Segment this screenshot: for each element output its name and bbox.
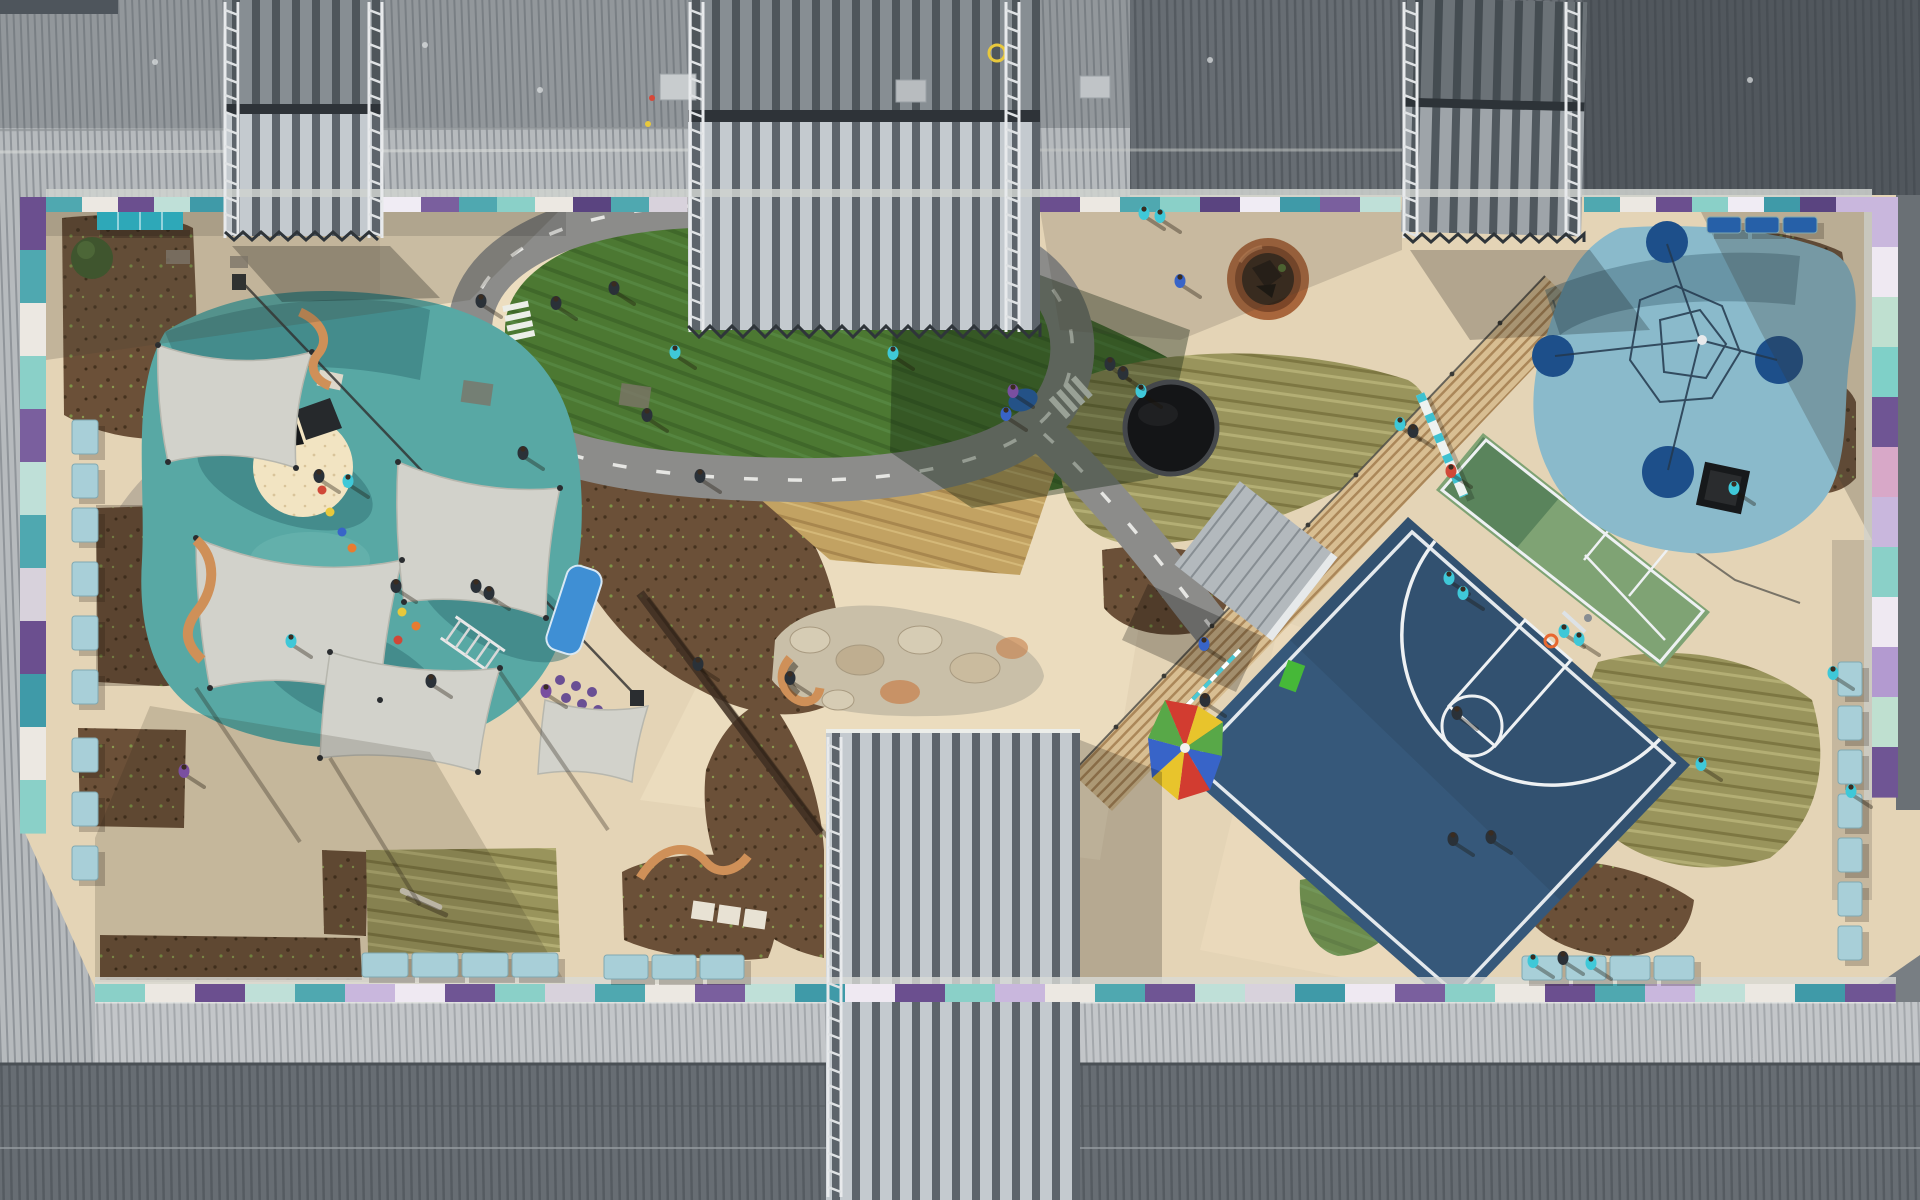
aerial-photo-schoolyard: { "scene": { "type": "aerial-drone-photo… <box>0 0 1920 1200</box>
wall-panels-top-4 <box>1584 197 1621 212</box>
wall-panels-right <box>1872 247 1898 298</box>
wall-panels-top-3 <box>1200 197 1241 212</box>
child-head <box>1202 693 1207 698</box>
wall-panels-bottom <box>1695 984 1746 1002</box>
wall-panels-left <box>20 621 46 675</box>
wall-panels-bottom <box>95 984 146 1002</box>
wall-panels-top-2 <box>535 197 574 212</box>
wall-panels-top-1 <box>190 197 227 212</box>
child-head <box>478 294 483 299</box>
child-head <box>1560 951 1565 956</box>
child-head <box>1157 209 1162 214</box>
child-head <box>644 408 649 413</box>
wall-panels-top-2 <box>611 197 650 212</box>
wall-panels-right <box>1872 197 1898 248</box>
child-head <box>428 674 433 679</box>
wall-panels-left <box>20 197 46 251</box>
wall-panels-bottom <box>995 984 1046 1002</box>
wall-panels-top-2 <box>459 197 498 212</box>
wall-panels-bottom <box>845 984 896 1002</box>
wall-panels-right <box>1872 647 1898 698</box>
bench-column-right <box>1838 750 1862 784</box>
drain-grate <box>166 250 190 264</box>
wall-panels-left <box>20 409 46 463</box>
wall-panels-top-3 <box>1240 197 1281 212</box>
bench-row-bottom-left <box>462 953 508 977</box>
bench-column-left <box>72 508 98 542</box>
bench-column-left <box>72 670 98 704</box>
child-head <box>1698 757 1703 762</box>
child-head <box>393 579 398 584</box>
child-head <box>1177 274 1182 279</box>
child-head <box>1460 586 1465 591</box>
wall-panels-bottom <box>195 984 246 1002</box>
wall-panels-left <box>20 303 46 357</box>
wall-panels-top-3 <box>1360 197 1401 212</box>
bench-column-right <box>1838 882 1862 916</box>
child-head <box>288 634 293 639</box>
child-head <box>486 586 491 591</box>
child-head <box>672 345 677 350</box>
wall-panels-top-2 <box>383 197 422 212</box>
wall-panels-bottom <box>1145 984 1196 1002</box>
child-head <box>1120 366 1125 371</box>
wall-panels-bottom <box>345 984 396 1002</box>
wall-panels-top-4 <box>1620 197 1657 212</box>
sunken-pit <box>1696 462 1750 515</box>
drain-grate <box>230 256 248 268</box>
wall-panels-top-1 <box>82 197 119 212</box>
wall-panels-left <box>20 674 46 728</box>
wall-panels-bottom <box>245 984 296 1002</box>
bench-row-bottom-mid <box>604 955 648 979</box>
wall-panels-top-2 <box>649 197 688 212</box>
net-mast <box>1697 335 1707 345</box>
wall-panels-right <box>1872 447 1898 498</box>
child-head <box>1454 706 1459 711</box>
wall-panels-bottom <box>1245 984 1296 1002</box>
bench-column-left <box>72 846 98 880</box>
child-head <box>1003 407 1008 412</box>
bench-column-left <box>72 464 98 498</box>
roof-corner-shade <box>1584 0 1920 195</box>
wall-panels-right <box>1872 697 1898 748</box>
bench-row-top-right <box>1745 217 1779 233</box>
bench-column-left <box>72 738 98 772</box>
child-head <box>697 469 702 474</box>
child-head <box>1397 417 1402 422</box>
wall-panels-bottom <box>895 984 946 1002</box>
bench-row-bottom-right <box>1654 956 1694 980</box>
child-head <box>787 671 792 676</box>
wall-panels-top-1 <box>118 197 155 212</box>
wall-panels-top-3 <box>1320 197 1361 212</box>
child-head <box>1450 832 1455 837</box>
wall-panels-top-2 <box>573 197 612 212</box>
wall-panels-top-4 <box>1764 197 1801 212</box>
wall-panels-top-4 <box>1836 197 1873 212</box>
wall-panels-top-3 <box>1160 197 1201 212</box>
wall-panels-top-1 <box>46 197 83 212</box>
child-head <box>1446 571 1451 576</box>
bench-row-bottom-left <box>512 953 558 977</box>
wall-panels-right <box>1872 497 1898 548</box>
bench-row-bottom-left <box>412 953 458 977</box>
wall-panels-bottom <box>1845 984 1896 1002</box>
wall-panels-bottom <box>1445 984 1496 1002</box>
wall-panels-bottom <box>695 984 746 1002</box>
bench-column-right <box>1838 838 1862 872</box>
wall-panels-right <box>1872 547 1898 598</box>
drain-grate <box>619 383 652 409</box>
bench-column-left <box>72 562 98 596</box>
wall-panels-top-3 <box>1280 197 1321 212</box>
wall-panels-bottom <box>1345 984 1396 1002</box>
child-head <box>890 346 895 351</box>
child-head <box>1588 956 1593 961</box>
child-head <box>1830 666 1835 671</box>
eave-fascia <box>46 189 1872 197</box>
wall-panels-bottom <box>595 984 646 1002</box>
bench-column-left <box>72 792 98 826</box>
wall-panels-bottom <box>745 984 796 1002</box>
bench-row-top-right <box>1707 217 1741 233</box>
wall-panels-top-2 <box>497 197 536 212</box>
child-head <box>611 281 616 286</box>
child-head <box>1141 206 1146 211</box>
wall-panels-top-4 <box>1728 197 1765 212</box>
wall-panels-top-4 <box>1656 197 1693 212</box>
bench-row-bottom-left <box>362 953 408 977</box>
eave-fascia-right <box>1864 197 1872 800</box>
wall-panels-bottom <box>1595 984 1646 1002</box>
roof-protrusion-d <box>826 731 1080 1200</box>
wall-panels-bottom <box>145 984 196 1002</box>
bench-row-top-right <box>1783 217 1817 233</box>
child-head <box>181 764 186 769</box>
wall-panels-bottom <box>1395 984 1446 1002</box>
bench-column-right <box>1838 662 1862 696</box>
wall-panels-top-3 <box>1080 197 1121 212</box>
zipline-post <box>630 690 644 706</box>
wall-panels-top-1 <box>154 197 191 212</box>
bench-column-left <box>72 420 98 454</box>
bench-row-bottom-right <box>1610 956 1650 980</box>
wall-panels-bottom <box>1045 984 1096 1002</box>
child-head <box>520 446 525 451</box>
wall-panels-bottom <box>295 984 346 1002</box>
wall-panels-top-3 <box>1040 197 1081 212</box>
child-head <box>1010 384 1015 389</box>
wall-panels-right <box>1872 597 1898 648</box>
wall-panels-right <box>1872 397 1898 448</box>
wall-panels-left <box>20 515 46 569</box>
child-head <box>1410 424 1415 429</box>
child-head <box>543 684 548 689</box>
courtyard-scene <box>0 0 1920 1200</box>
wall-panels-right <box>1872 297 1898 348</box>
child-head <box>1561 624 1566 629</box>
shade-sail <box>158 345 312 468</box>
wall-panels-bottom <box>1195 984 1246 1002</box>
teal-awning <box>97 210 190 238</box>
wall-panels-right <box>1872 747 1898 798</box>
wall-panels-left <box>20 250 46 304</box>
wall-panels-bottom <box>1745 984 1796 1002</box>
wall-panels-bottom <box>495 984 546 1002</box>
child-head <box>1576 632 1581 637</box>
wall-panels-bottom <box>1795 984 1846 1002</box>
roof-left-edge <box>0 195 20 828</box>
bench-row-bottom-mid <box>652 955 696 979</box>
roof-protrusion-c <box>1401 0 1587 236</box>
child-head <box>473 579 478 584</box>
child-head <box>1107 357 1112 362</box>
wall-panels-left <box>20 727 46 781</box>
roof-protrusion-b <box>688 0 1040 330</box>
wall-panels-bottom <box>1545 984 1596 1002</box>
child-head <box>553 296 558 301</box>
wall-panels-left <box>20 568 46 622</box>
child-head <box>1201 637 1206 642</box>
roof-right-edge <box>1896 195 1920 810</box>
child-head <box>345 474 350 479</box>
shade-sail <box>538 700 648 782</box>
drain-grate <box>461 380 494 406</box>
wall-panels-bottom <box>1645 984 1696 1002</box>
bench-column-left <box>72 616 98 650</box>
wall-panels-bottom <box>1095 984 1146 1002</box>
wall-panels-right <box>1872 347 1898 398</box>
wall-panels-bottom <box>645 984 696 1002</box>
bench-row-bottom-mid <box>700 955 744 979</box>
bench-column-right <box>1838 706 1862 740</box>
wall-panels-bottom <box>945 984 996 1002</box>
wall-panels-bottom <box>445 984 496 1002</box>
child-head <box>1488 830 1493 835</box>
wall-panels-bottom <box>1495 984 1546 1002</box>
wall-panels-top-2 <box>421 197 460 212</box>
wall-panels-top-4 <box>1692 197 1729 212</box>
child-head <box>1448 464 1453 469</box>
wall-panels-bottom <box>1295 984 1346 1002</box>
bench-column-right <box>1838 926 1862 960</box>
child-head <box>1731 481 1736 486</box>
wall-panels-top-4 <box>1800 197 1837 212</box>
roof-protrusion-a <box>225 0 383 236</box>
child-head <box>695 657 700 662</box>
wall-panels-left <box>20 356 46 410</box>
wall-panels-bottom <box>545 984 596 1002</box>
child-head <box>316 469 321 474</box>
child-head <box>1530 954 1535 959</box>
child-head <box>1848 784 1853 789</box>
wall-panels-left <box>20 462 46 516</box>
wall-panels-bottom <box>395 984 446 1002</box>
wall-panels-left <box>20 780 46 834</box>
